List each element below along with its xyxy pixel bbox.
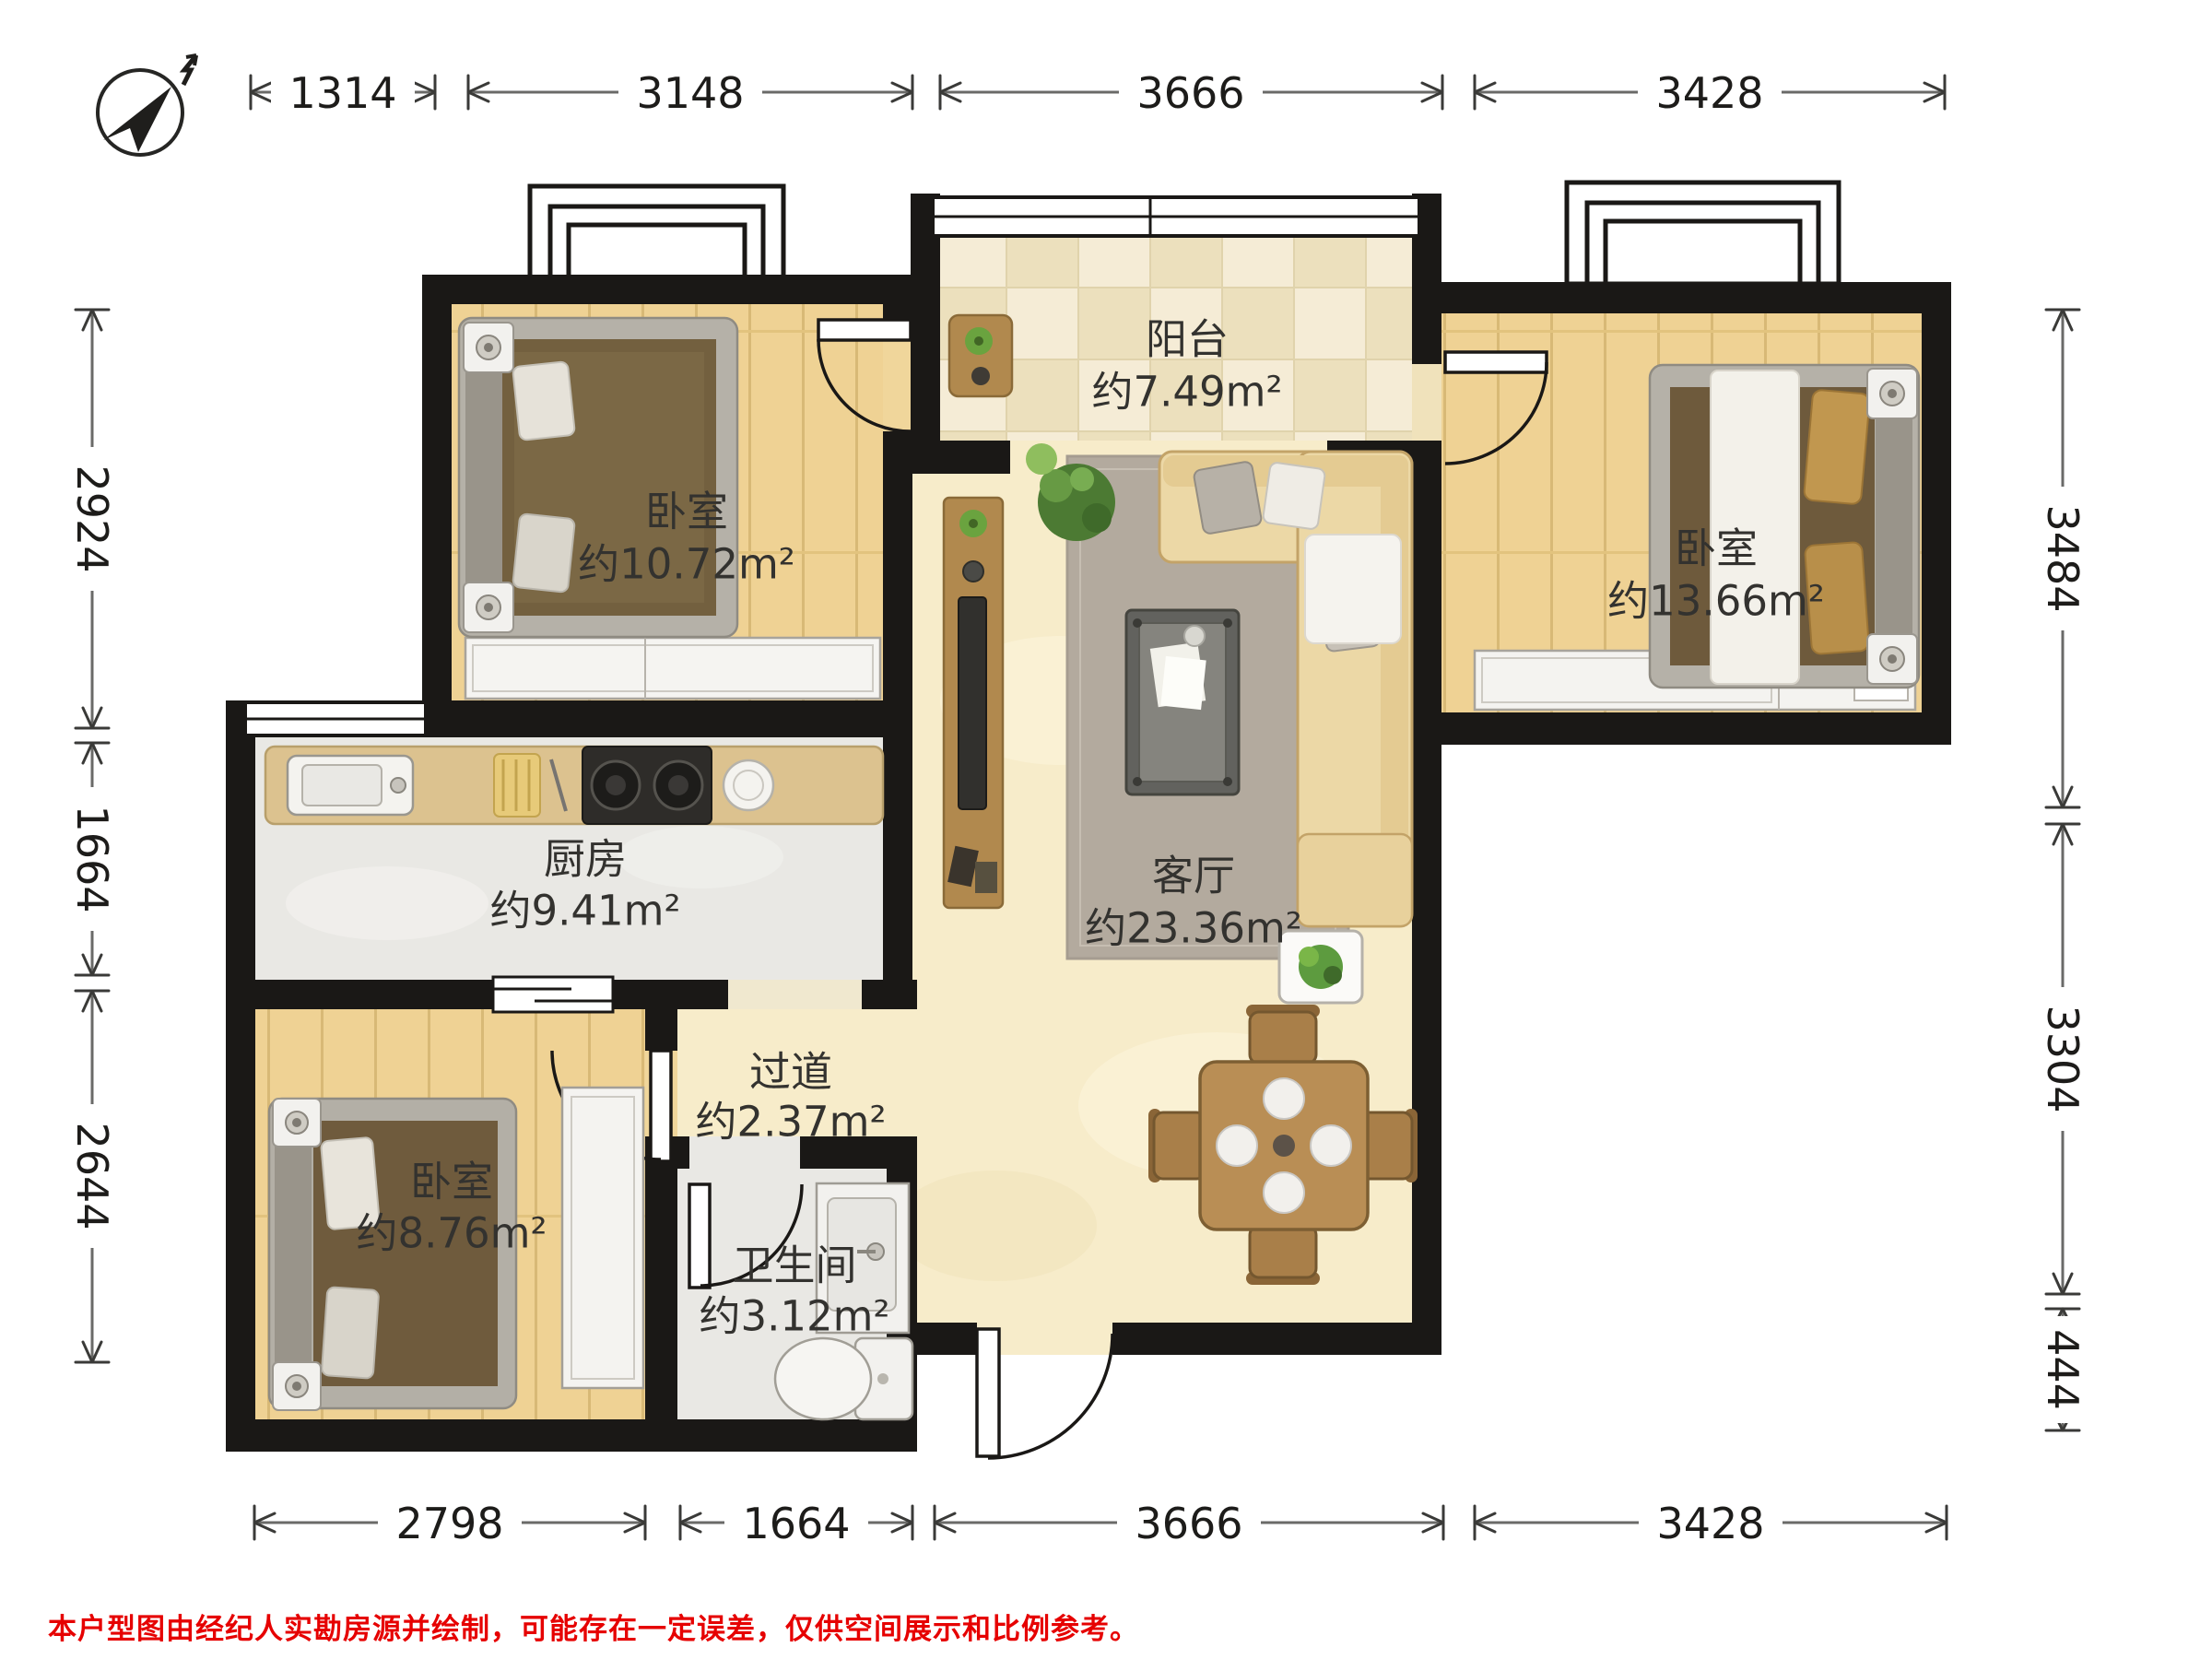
label-bathroom-name: 卫生间 xyxy=(732,1241,856,1290)
label-balcony-name: 阳台 xyxy=(1146,315,1229,364)
tv xyxy=(959,597,986,809)
kitchen-sink xyxy=(288,756,413,815)
svg-text:2798: 2798 xyxy=(395,1499,503,1548)
svg-text:3428: 3428 xyxy=(1656,1499,1764,1548)
svg-text:3428: 3428 xyxy=(1655,68,1763,118)
svg-text:1314: 1314 xyxy=(288,68,396,118)
kitchen-pass-window xyxy=(493,977,613,1012)
label-bedroom-top-left-name: 卧室 xyxy=(645,488,728,536)
label-bedroom-bottom-left-area: 约8.76m² xyxy=(356,1209,547,1258)
svg-text:1664: 1664 xyxy=(742,1499,850,1548)
label-bedroom-top-right-area: 约13.66m² xyxy=(1607,577,1825,626)
svg-text:2644: 2644 xyxy=(67,1122,117,1230)
dimensions-top: 1314 3148 3666 3428 xyxy=(251,68,1945,118)
wardrobe-bedroom-top-left xyxy=(465,638,880,699)
label-bathroom-area: 约3.12m² xyxy=(699,1292,889,1341)
label-bedroom-bottom-left-name: 卧室 xyxy=(410,1158,493,1206)
kitchen-bowl xyxy=(724,760,773,810)
dining-chair-top xyxy=(1246,1005,1320,1064)
tv-cabinet xyxy=(944,498,1003,908)
toilet xyxy=(775,1338,912,1419)
dim-bottom-4: 3428 xyxy=(1475,1499,1947,1548)
dim-right-2: 3304 xyxy=(2038,824,2088,1294)
balcony-window xyxy=(933,197,1419,236)
label-kitchen-area: 约9.41m² xyxy=(489,887,680,935)
svg-text:1664: 1664 xyxy=(67,805,117,912)
label-bedroom-top-left-area: 约10.72m² xyxy=(578,540,795,589)
coffee-table xyxy=(1126,610,1239,794)
dim-right-3: 444 xyxy=(2038,1309,2088,1430)
dining-chair-bottom xyxy=(1246,1226,1320,1285)
disclaimer-text: 本户型图由经纪人实勘房源并绘制，可能存在一定误差，仅供空间展示和比例参考。 xyxy=(48,1613,1139,1646)
dim-top-4: 3428 xyxy=(1475,68,1945,118)
svg-text:3304: 3304 xyxy=(2038,1005,2088,1112)
dim-top-2: 3148 xyxy=(468,68,912,118)
label-hallway-area: 约2.37m² xyxy=(695,1098,886,1147)
dim-bottom-2: 1664 xyxy=(680,1499,912,1548)
dimensions-right: 3484 3304 444 xyxy=(2038,310,2088,1430)
label-bedroom-top-right-name: 卧室 xyxy=(1675,524,1758,573)
dim-left-2: 1664 xyxy=(67,743,117,975)
svg-text:444: 444 xyxy=(2038,1329,2088,1410)
kitchen-window xyxy=(245,702,426,735)
dim-top-3: 3666 xyxy=(940,68,1442,118)
stove xyxy=(582,747,712,824)
dimensions-left: 2924 1664 2644 xyxy=(67,310,117,1362)
svg-text:2924: 2924 xyxy=(67,465,117,572)
kitchen-counter xyxy=(265,747,883,824)
label-living-room-name: 客厅 xyxy=(1152,852,1235,900)
dim-left-1: 2924 xyxy=(67,310,117,728)
dim-bottom-1: 2798 xyxy=(254,1499,645,1548)
dim-bottom-3: 3666 xyxy=(935,1499,1443,1548)
dim-left-3: 2644 xyxy=(67,991,117,1362)
label-balcony-area: 约7.49m² xyxy=(1091,368,1282,417)
dim-top-1: 1314 xyxy=(251,68,435,118)
dim-right-1: 3484 xyxy=(2038,310,2088,807)
label-kitchen-name: 厨房 xyxy=(544,835,627,884)
bay-window-top-left xyxy=(530,186,783,278)
wardrobe-bedroom-bottom-left xyxy=(562,1088,643,1388)
dining-chair-left xyxy=(1148,1109,1206,1182)
label-hallway-name: 过道 xyxy=(749,1048,832,1097)
svg-text:3484: 3484 xyxy=(2038,504,2088,612)
svg-text:3666: 3666 xyxy=(1135,1499,1242,1548)
compass-north-icon xyxy=(98,55,196,155)
svg-text:3148: 3148 xyxy=(636,68,744,118)
balcony-side-table xyxy=(949,315,1012,396)
floor-plan: 阳台 约7.49m² 卧室 约10.72m² 卧室 约13.66m² 厨房 约9… xyxy=(0,0,2212,1659)
dimensions-bottom: 2798 1664 3666 3428 xyxy=(254,1499,1947,1548)
bay-window-top-right xyxy=(1567,182,1839,284)
label-living-room-area: 约23.36m² xyxy=(1085,904,1302,953)
svg-text:3666: 3666 xyxy=(1136,68,1244,118)
